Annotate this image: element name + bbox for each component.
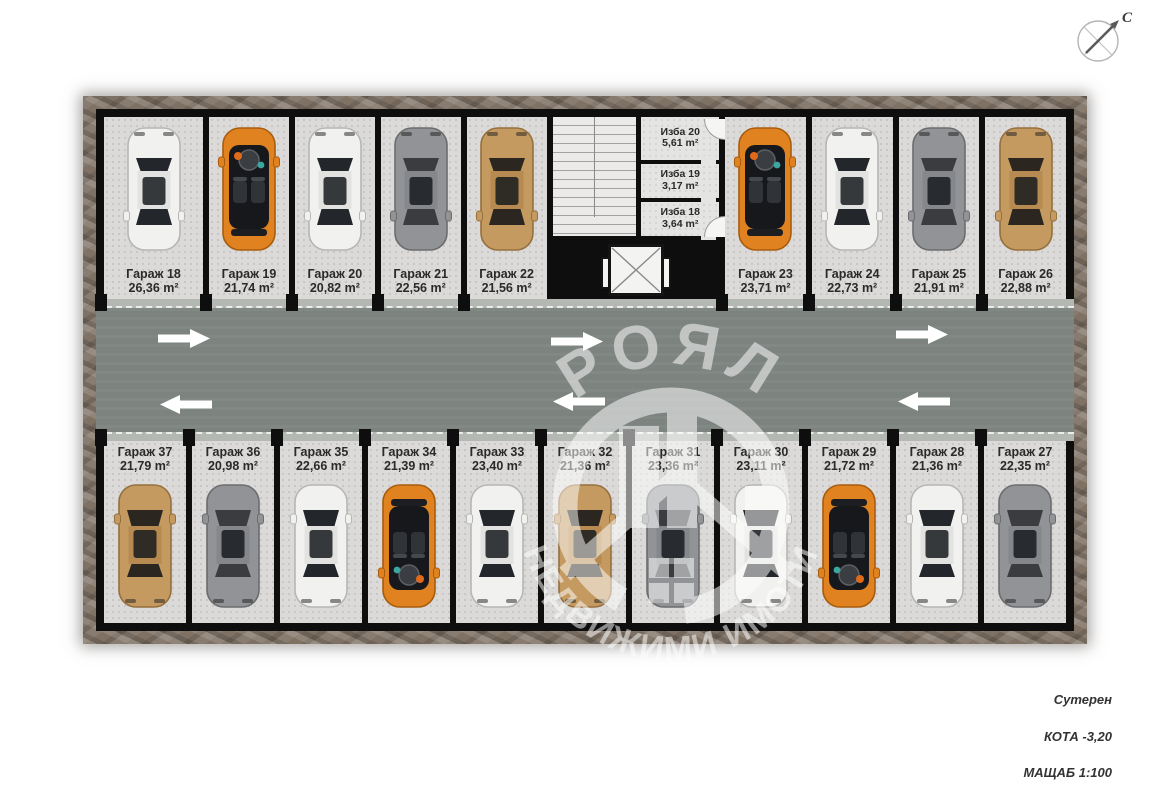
garage-number: Гараж 22 [467, 267, 547, 281]
curb-top [96, 299, 1074, 308]
garage-stall: Гараж 2422,73 m² [812, 117, 893, 299]
garage-label: Гараж 3620,98 m² [192, 445, 274, 473]
car-top-view-white [821, 125, 883, 258]
garage-number: Гараж 32 [544, 445, 626, 459]
garage-stall: Гараж 3421,39 m² [368, 441, 450, 623]
svg-text:С: С [1122, 10, 1133, 26]
garage-label: Гараж 2122,56 m² [381, 267, 461, 295]
garage-label: Гараж 2521,91 m² [899, 267, 980, 295]
garage-number: Гараж 20 [295, 267, 375, 281]
garage-number: Гараж 29 [808, 445, 890, 459]
car-top-view-bronze [995, 125, 1057, 258]
car-top-view-gray [994, 482, 1056, 615]
driving-lane [96, 299, 1074, 441]
garage-stall: Гараж 3620,98 m² [192, 441, 274, 623]
garage-stall: Гараж 3221,36 m² [544, 441, 626, 623]
garage-number: Гараж 21 [381, 267, 461, 281]
garage-label: Гараж 3123,36 m² [632, 445, 714, 473]
garage-label: Гараж 3221,36 m² [544, 445, 626, 473]
car-top-view-bronze [476, 125, 538, 258]
garage-number: Гараж 36 [192, 445, 274, 459]
garage-area: 22,56 m² [381, 281, 461, 295]
garage-label: Гараж 2221,56 m² [467, 267, 547, 295]
garage-label: Гараж 2722,35 m² [984, 445, 1066, 473]
garage-stall: Гараж 2020,82 m² [295, 117, 375, 299]
elevation-note: КОТА -3,20 [892, 729, 1112, 744]
garage-number: Гараж 31 [632, 445, 714, 459]
garage-area: 22,88 m² [985, 281, 1066, 295]
compass-icon: С [1072, 8, 1150, 66]
garage-stall: Гараж 3721,79 m² [104, 441, 186, 623]
car-top-view-white [123, 125, 185, 258]
direction-arrow-left [553, 392, 605, 411]
garage-area: 22,35 m² [984, 459, 1066, 473]
garage-stall: Гараж 2622,88 m² [985, 117, 1066, 299]
garage-label: Гараж 2622,88 m² [985, 267, 1066, 295]
garage-number: Гараж 18 [104, 267, 203, 281]
garage-area: 22,73 m² [812, 281, 893, 295]
garage-stall: Гараж 3123,36 m² [632, 441, 714, 623]
garage-label: Гараж 3323,40 m² [456, 445, 538, 473]
door-opening [701, 194, 716, 202]
garage-stall: Гараж 2521,91 m² [899, 117, 980, 299]
garage-area: 20,98 m² [192, 459, 274, 473]
car-top-view-orange-open [734, 125, 796, 258]
garage-label: Гараж 3522,66 m² [280, 445, 362, 473]
garage-label: Гараж 3023,11 m² [720, 445, 802, 473]
garage-area: 20,82 m² [295, 281, 375, 295]
garage-area: 21,39 m² [368, 459, 450, 473]
direction-arrow-right [551, 332, 603, 351]
garage-area: 21,56 m² [467, 281, 547, 295]
level-name: Сутерен [892, 692, 1112, 707]
garage-area: 21,36 m² [544, 459, 626, 473]
garage-row-bottom: Гараж 3721,79 m²Гараж 3620,98 m²Гараж 35… [104, 441, 1066, 623]
garage-label: Гараж 1826,36 m² [104, 267, 203, 295]
garage-number: Гараж 30 [720, 445, 802, 459]
garage-row-top-left: Гараж 1826,36 m²Гараж 1921,74 m²Гараж 20… [104, 117, 547, 299]
garage-label: Гараж 1921,74 m² [209, 267, 289, 295]
car-top-view-white [466, 482, 528, 615]
garage-area: 23,11 m² [720, 459, 802, 473]
garage-number: Гараж 35 [280, 445, 362, 459]
room-area: 3,64 m² [662, 219, 698, 231]
garage-stall: Гараж 3023,11 m² [720, 441, 802, 623]
garage-stall: Гараж 2722,35 m² [984, 441, 1066, 623]
garage-stall: Гараж 1921,74 m² [209, 117, 289, 299]
car-top-view-orange-open [378, 482, 440, 615]
elevator-icon [611, 247, 661, 293]
elevator-rail [662, 257, 671, 289]
room-area: 5,61 m² [662, 138, 698, 150]
garage-area: 21,79 m² [104, 459, 186, 473]
garage-number: Гараж 34 [368, 445, 450, 459]
storage-rooms: Изба 20 5,61 m² Изба 19 3,17 m² Изба 18 … [641, 117, 719, 236]
car-top-view-gray [390, 125, 452, 258]
garage-stall: Гараж 2921,72 m² [808, 441, 890, 623]
garage-label: Гараж 3421,39 m² [368, 445, 450, 473]
building-outline: Гараж 1826,36 m²Гараж 1921,74 m²Гараж 20… [96, 109, 1074, 631]
drawing-legend: Сутерен КОТА -3,20 МАЩАБ 1:100 [892, 692, 1112, 780]
elevator [608, 244, 664, 296]
storage-room: Изба 19 3,17 m² [641, 164, 719, 198]
elevator-rail [601, 257, 610, 289]
room-area: 3,17 m² [662, 181, 698, 193]
stair-core: Изба 20 5,61 m² Изба 19 3,17 m² Изба 18 … [553, 117, 720, 299]
garage-label: Гараж 2020,82 m² [295, 267, 375, 295]
car-top-view-gray [202, 482, 264, 615]
car-top-view-gray [908, 125, 970, 258]
garage-row-top: Гараж 1826,36 m²Гараж 1921,74 m²Гараж 20… [104, 117, 1066, 299]
garage-area: 21,91 m² [899, 281, 980, 295]
garage-area: 23,40 m² [456, 459, 538, 473]
garage-label: Гараж 2422,73 m² [812, 267, 893, 295]
floor-plan: Гараж 1826,36 m²Гараж 1921,74 m²Гараж 20… [83, 96, 1087, 644]
car-top-view-white [290, 482, 352, 615]
direction-arrow-left [160, 395, 212, 414]
elevator-zone [553, 241, 720, 299]
car-top-view-white [906, 482, 968, 615]
garage-number: Гараж 37 [104, 445, 186, 459]
car-top-view-orange-open [218, 125, 280, 258]
direction-arrow-right [896, 325, 948, 344]
garage-label: Гараж 3721,79 m² [104, 445, 186, 473]
garage-stall: Гараж 2821,36 m² [896, 441, 978, 623]
garage-number: Гараж 25 [899, 267, 980, 281]
garage-label: Гараж 2323,71 m² [725, 267, 806, 295]
garage-row-top-right: Гараж 2323,71 m²Гараж 2422,73 m²Гараж 25… [725, 117, 1066, 299]
garage-area: 21,36 m² [896, 459, 978, 473]
north-compass: С [1072, 8, 1150, 66]
garage-number: Гараж 33 [456, 445, 538, 459]
door-opening [701, 156, 716, 164]
garage-number: Гараж 26 [985, 267, 1066, 281]
car-top-view-orange-open [818, 482, 880, 615]
garage-area: 21,72 m² [808, 459, 890, 473]
garage-number: Гараж 24 [812, 267, 893, 281]
curb-bottom [96, 432, 1074, 441]
garage-area: 26,36 m² [104, 281, 203, 295]
garage-stall: Гараж 2221,56 m² [467, 117, 547, 299]
garage-stall: Гараж 1826,36 m² [104, 117, 203, 299]
garage-area: 23,36 m² [632, 459, 714, 473]
car-top-view-white [730, 482, 792, 615]
garage-stall: Гараж 3323,40 m² [456, 441, 538, 623]
garage-number: Гараж 23 [725, 267, 806, 281]
garage-area: 23,71 m² [725, 281, 806, 295]
direction-arrow-right [158, 329, 210, 348]
garage-area: 21,74 m² [209, 281, 289, 295]
garage-stall: Гараж 3522,66 m² [280, 441, 362, 623]
garage-label: Гараж 2821,36 m² [896, 445, 978, 473]
direction-arrow-left [898, 392, 950, 411]
car-top-view-gray [642, 482, 704, 615]
garage-stall: Гараж 2122,56 m² [381, 117, 461, 299]
staircase [553, 117, 637, 236]
garage-label: Гараж 2921,72 m² [808, 445, 890, 473]
garage-number: Гараж 19 [209, 267, 289, 281]
car-top-view-bronze [114, 482, 176, 615]
garage-number: Гараж 27 [984, 445, 1066, 459]
scale-note: МАЩАБ 1:100 [892, 765, 1112, 780]
car-top-view-bronze [554, 482, 616, 615]
car-top-view-white [304, 125, 366, 258]
garage-number: Гараж 28 [896, 445, 978, 459]
garage-area: 22,66 m² [280, 459, 362, 473]
garage-stall: Гараж 2323,71 m² [725, 117, 806, 299]
